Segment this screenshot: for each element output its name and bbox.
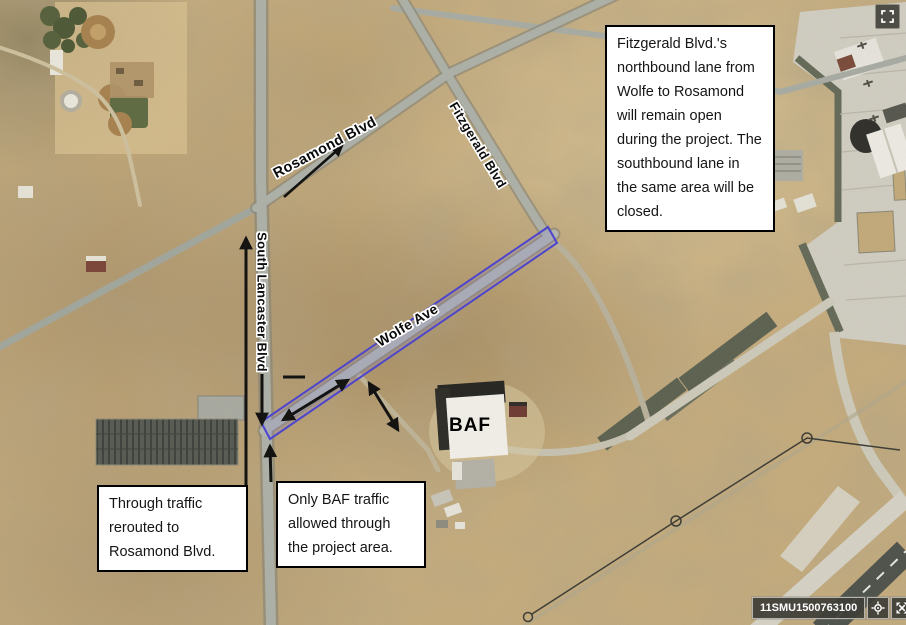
baf-building-label: BAF [449,415,491,437]
extent-button[interactable] [891,597,906,619]
coordinate-readout: 11SMU1500763100 [752,597,865,619]
map-canvas[interactable]: Rosamond Blvd Fitzgerald Blvd South Lanc… [0,0,906,625]
road-label-lancaster: South Lancaster Blvd [255,232,270,372]
fullscreen-button[interactable] [875,4,900,29]
statusbar: 11SMU1500763100 [751,596,906,620]
crosshair-locate-icon [871,601,885,615]
extent-arrows-icon [895,601,906,615]
locate-button[interactable] [867,597,889,619]
callout-fitzgerald-lanes: Fitzgerald Blvd.'s northbound lane from … [605,25,775,232]
fullscreen-icon [881,10,894,23]
callout-baf-traffic: Only BAF traffic allowed through the pro… [276,481,426,568]
callout-through-traffic: Through traffic rerouted to Rosamond Blv… [97,485,248,572]
